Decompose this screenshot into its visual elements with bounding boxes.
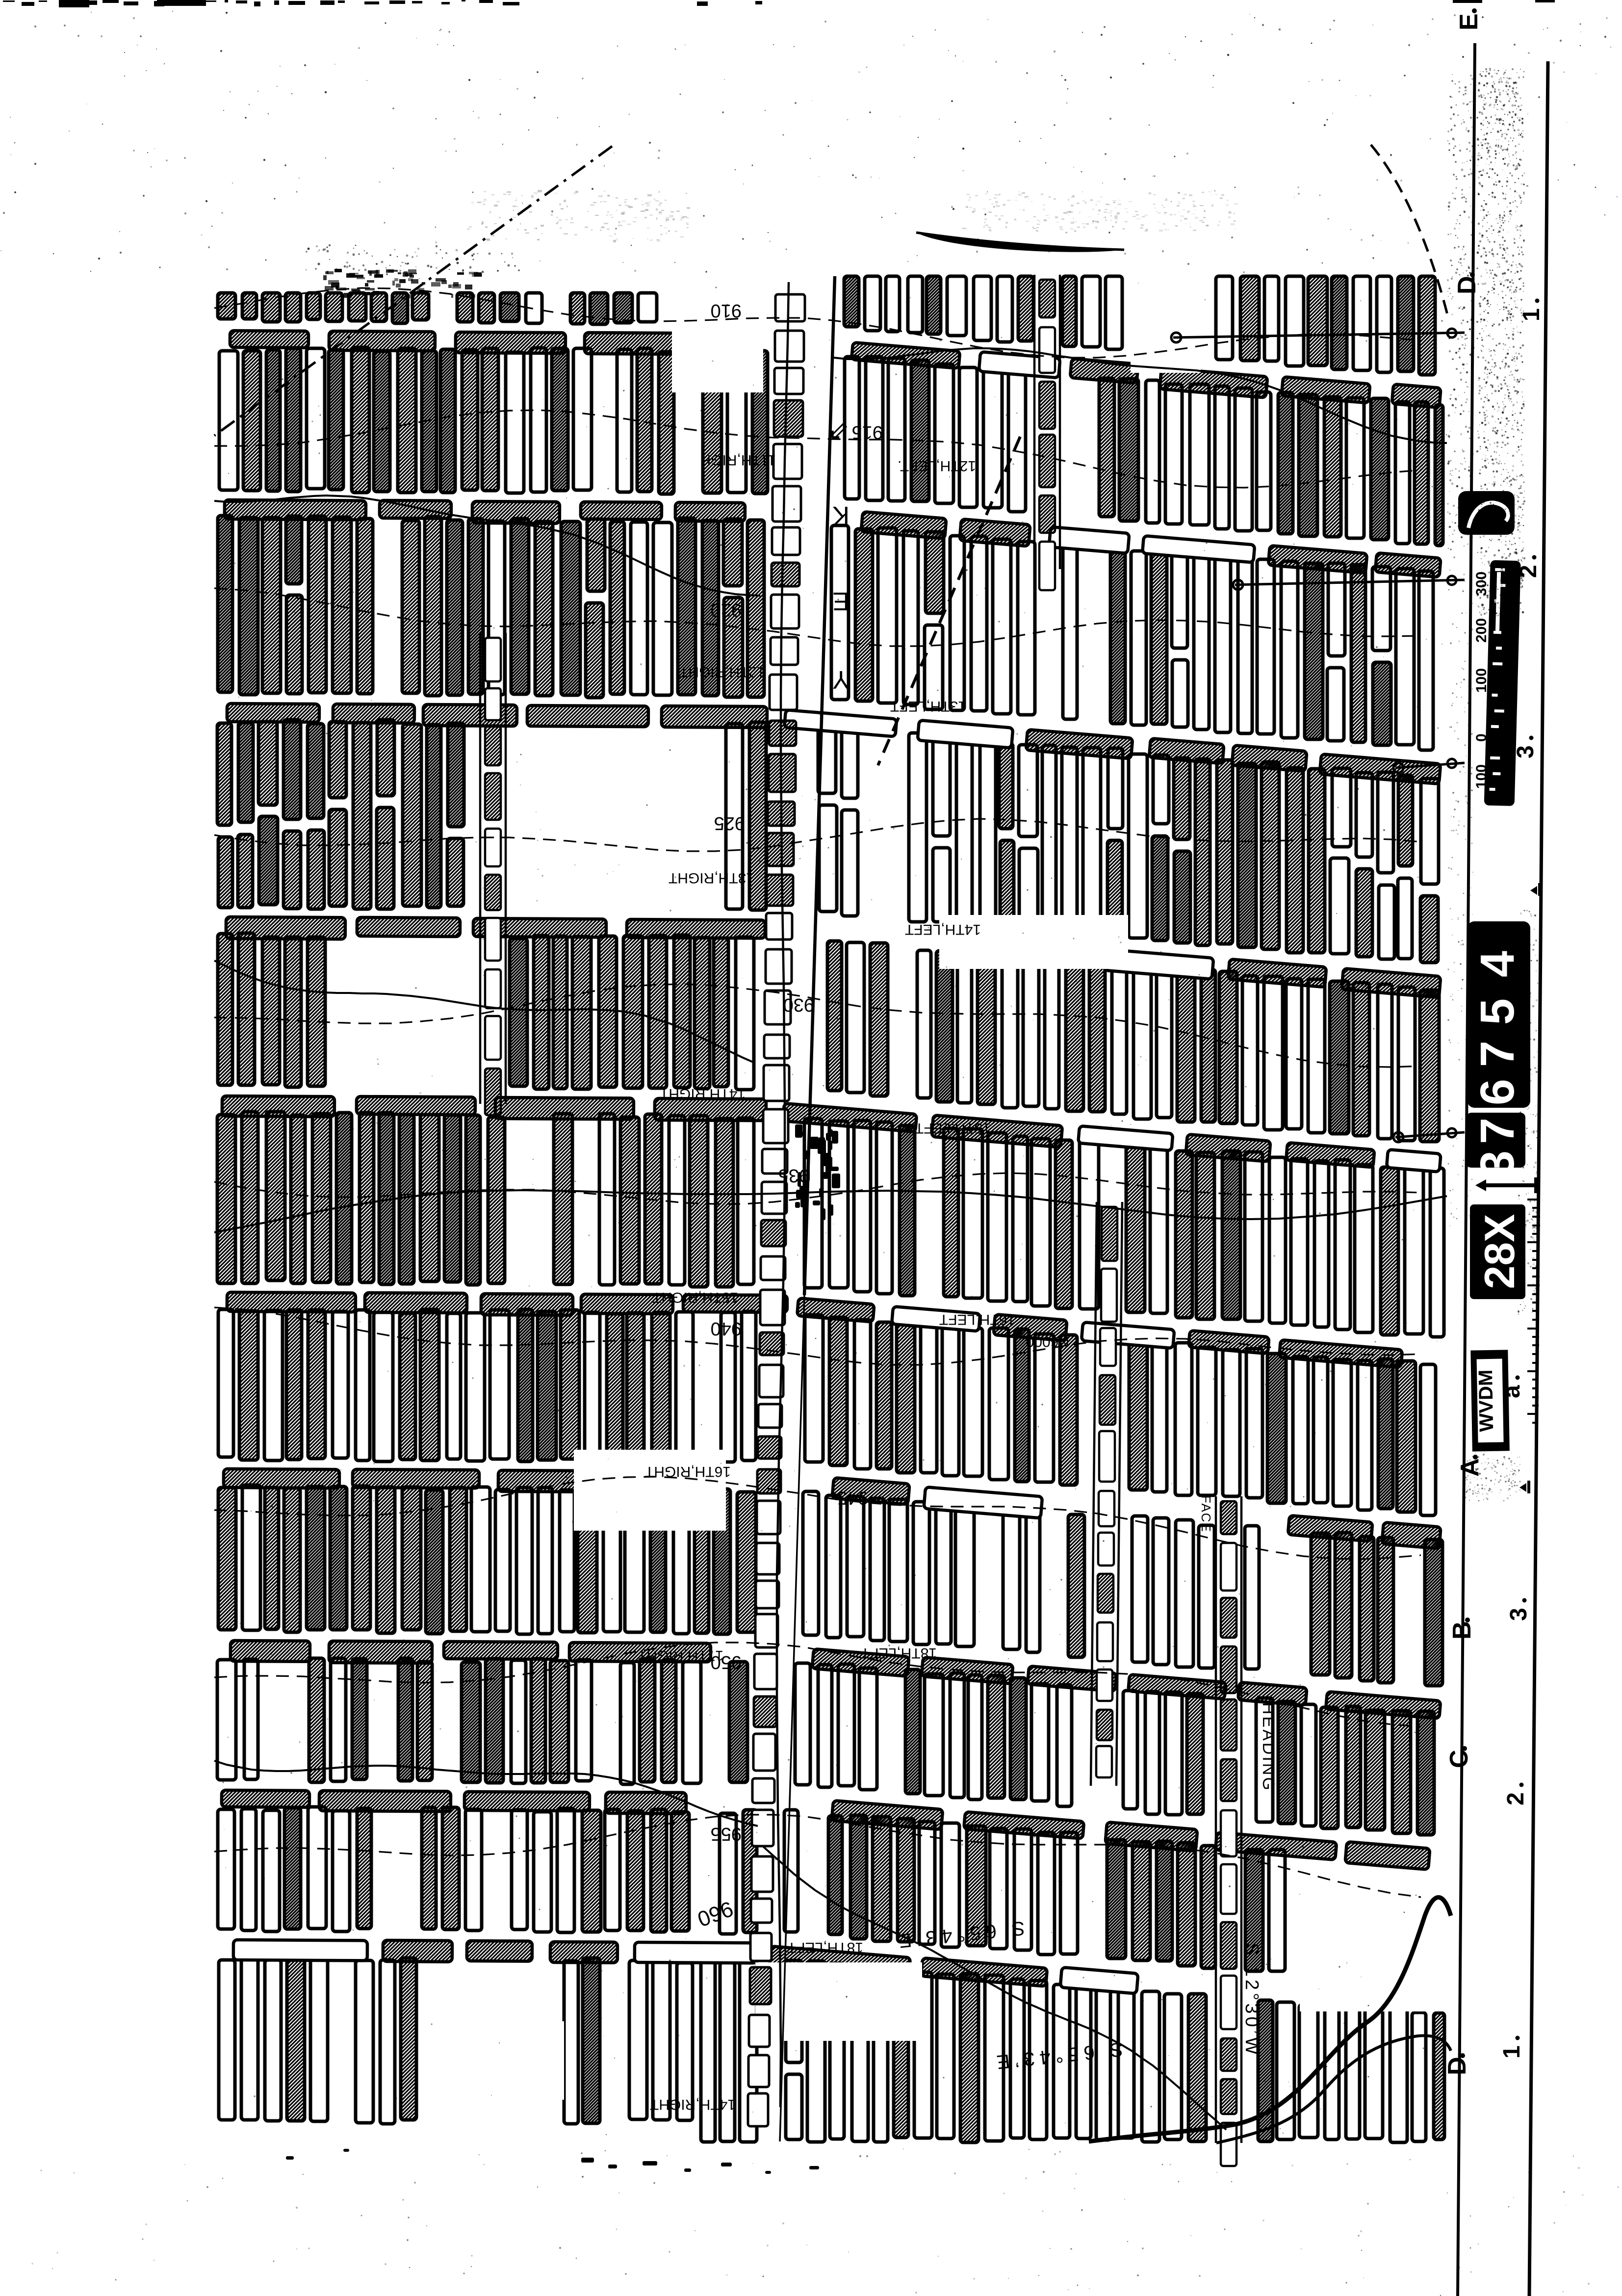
svg-text:100: 100 <box>1473 668 1490 693</box>
svg-text:300: 300 <box>1473 572 1490 596</box>
svg-text:12TH,RIGHT: 12TH,RIGHT <box>679 664 765 680</box>
svg-text:920: 920 <box>711 600 742 620</box>
svg-text:18TH,LEFT: 18TH,LEFT <box>787 1939 863 1956</box>
svg-text:1: 1 <box>1499 2045 1525 2059</box>
svg-text:28X: 28X <box>1476 1214 1523 1289</box>
svg-text:955: 955 <box>711 1824 742 1844</box>
svg-text:N6000: N6000 <box>1026 1333 1069 1350</box>
svg-text:11TH,RIGH: 11TH,RIGH <box>700 452 776 468</box>
svg-text:⇗: ⇗ <box>828 417 850 446</box>
svg-text:E: E <box>832 587 850 615</box>
svg-text:940: 940 <box>711 1318 742 1339</box>
svg-text:925: 925 <box>714 813 745 834</box>
svg-text:D: D <box>1453 276 1481 294</box>
svg-text:935: 935 <box>778 1165 809 1186</box>
svg-text:945: 945 <box>837 1487 868 1508</box>
svg-text:12TH,LEFT.: 12TH,LEFT. <box>898 458 976 474</box>
svg-text:7: 7 <box>1470 1041 1524 1067</box>
svg-text:FACE: FACE <box>1199 1495 1213 1533</box>
svg-text:4: 4 <box>1470 951 1524 977</box>
svg-text:0: 0 <box>1473 733 1490 742</box>
svg-text:C: C <box>1445 1749 1473 1768</box>
svg-text:915: 915 <box>852 422 883 443</box>
svg-text:3: 3 <box>1470 1150 1524 1177</box>
svg-text:15TH,RIGHT: 15TH,RIGHT <box>652 1289 738 1305</box>
svg-text:HEADING: HEADING <box>1259 1702 1278 1792</box>
svg-text:200: 200 <box>1473 618 1490 643</box>
svg-text:930: 930 <box>783 994 814 1015</box>
svg-text:14TH,RIGHT: 14TH,RIGHT <box>660 1086 746 1102</box>
svg-text:1: 1 <box>1519 308 1545 321</box>
svg-text:2: 2 <box>1503 1792 1529 1805</box>
svg-text:5: 5 <box>1470 998 1524 1025</box>
svg-text:7: 7 <box>1470 1118 1524 1144</box>
svg-text:E: E <box>1455 13 1483 30</box>
svg-text:S 12°30’W: S 12°30’W <box>1241 1943 1262 2058</box>
svg-text:13TH,LEFT: 13TH,LEFT <box>890 698 966 714</box>
svg-text:6: 6 <box>1470 1079 1524 1105</box>
svg-text:3: 3 <box>1506 1608 1532 1621</box>
svg-text:15TH,LEFT: 15TH,LEFT <box>915 1120 991 1136</box>
svg-text:D: D <box>1443 2057 1471 2075</box>
svg-text:17TH,RIGHT: 17TH,RIGHT <box>638 1647 723 1664</box>
svg-text:18TH,LEFT: 18TH,LEFT <box>861 1645 937 1661</box>
svg-text:WVDM: WVDM <box>1475 1369 1497 1432</box>
svg-text:100: 100 <box>1473 764 1490 789</box>
svg-text:14TH,LEFT: 14TH,LEFT <box>905 921 981 938</box>
svg-text:13TH,RIGHT: 13TH,RIGHT <box>669 870 754 886</box>
svg-text:3: 3 <box>1513 745 1539 758</box>
svg-text:910: 910 <box>711 300 742 321</box>
svg-text:16TH,RIGHT: 16TH,RIGHT <box>645 1463 731 1480</box>
svg-text:16TH,LEFT: 16TH,LEFT <box>939 1311 1015 1328</box>
svg-text:14TH,RIGHT: 14TH,RIGHT <box>650 2096 736 2113</box>
svg-text:Y: Y <box>832 665 850 694</box>
svg-text:B: B <box>1448 1621 1476 1640</box>
